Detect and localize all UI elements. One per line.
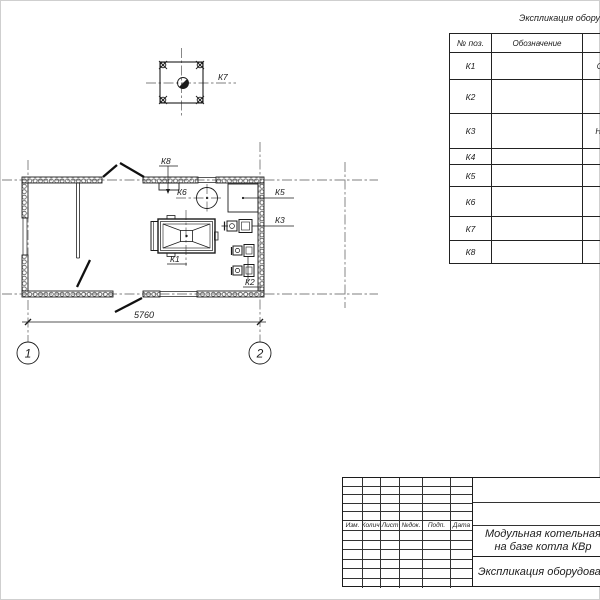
- centerlines: [2, 48, 378, 342]
- label-k2: К2: [245, 277, 255, 287]
- empty-cell: [473, 503, 600, 526]
- legend-name: [583, 241, 600, 263]
- document-title-line1: Модульная котельная: [485, 528, 600, 541]
- legend-pos: К6: [450, 187, 492, 216]
- legend-header-row: № поз. Обозначение: [450, 34, 600, 53]
- col-ndok: №док.: [400, 521, 423, 530]
- col-kolich: Колич.: [363, 521, 381, 530]
- legend-name: Насос: [583, 114, 600, 148]
- legend-pos: К1: [450, 53, 492, 79]
- legend-title: Экспликация обору: [519, 13, 600, 23]
- col-izm: Изм.: [343, 521, 363, 530]
- legend-designation: [492, 165, 583, 186]
- label-k7: К7: [218, 72, 228, 82]
- col-podp: Подп.: [423, 521, 451, 530]
- axis-markers: [17, 342, 271, 364]
- legend-designation: [492, 217, 583, 240]
- door-leaves: [77, 163, 144, 312]
- label-k8: К8: [161, 156, 171, 166]
- drawing-sheet: { "legend": { "title": "Экспликация обор…: [0, 0, 600, 600]
- col-data: Дата: [451, 521, 472, 530]
- legend-name: [583, 217, 600, 240]
- legend-row-k7: К7: [450, 217, 600, 241]
- legend-designation: [492, 187, 583, 216]
- equipment-legend-table: № поз. Обозначение К1 Стал К2 На К3 Насо…: [449, 33, 600, 264]
- partition-wall: [77, 183, 80, 258]
- label-k6: К6: [177, 187, 187, 197]
- title-block: Изм. Колич. Лист №док. Подп. Дата: [342, 477, 600, 587]
- legend-pos: К4: [450, 149, 492, 164]
- legend-row-k6: К6 Б: [450, 187, 600, 217]
- title-block-main: Модульная котельная на базе котла КВр Эк…: [473, 478, 600, 586]
- axis-number-1: 1: [25, 347, 32, 361]
- label-k1: К1: [170, 254, 180, 264]
- legend-name: [583, 165, 600, 186]
- title-block-header-row: Изм. Колич. Лист №док. Подп. Дата: [343, 521, 472, 531]
- legend-pos: К5: [450, 165, 492, 186]
- legend-pos: К2: [450, 80, 492, 113]
- legend-col-name: [583, 34, 600, 52]
- col-list: Лист: [381, 521, 400, 530]
- boiler-k1: [151, 216, 218, 257]
- document-title-line2: на базе котла КВр: [494, 541, 591, 554]
- sheet-name: Экспликация оборудовани: [473, 557, 600, 586]
- legend-row-k2: К2 На: [450, 80, 600, 114]
- document-title: Модульная котельная на базе котла КВр: [473, 526, 600, 557]
- legend-name: Гр: [583, 149, 600, 164]
- legend-pos: К7: [450, 217, 492, 240]
- legend-row-k3: К3 Насос: [450, 114, 600, 149]
- legend-row-k4: К4 Гр: [450, 149, 600, 165]
- legend-col-designation: Обозначение: [492, 34, 583, 52]
- legend-row-k8: К8: [450, 241, 600, 263]
- label-k3: К3: [275, 215, 285, 225]
- title-block-revision-grid: Изм. Колич. Лист №док. Подп. Дата: [343, 478, 473, 586]
- legend-designation: [492, 241, 583, 263]
- legend-name: Стал: [583, 53, 600, 79]
- designation-cell: [473, 478, 600, 503]
- legend-pos: К8: [450, 241, 492, 263]
- legend-designation: [492, 149, 583, 164]
- legend-pos: К3: [450, 114, 492, 148]
- dimension-value: 5760: [134, 310, 154, 320]
- axis-number-2: 2: [256, 347, 264, 361]
- legend-designation: [492, 114, 583, 148]
- legend-name: Б: [583, 187, 600, 216]
- legend-name: На: [583, 80, 600, 113]
- legend-col-pos: № поз.: [450, 34, 492, 52]
- pumps-k2: [232, 245, 255, 282]
- legend-row-k5: К5: [450, 165, 600, 187]
- legend-row-k1: К1 Стал: [450, 53, 600, 80]
- legend-designation: [492, 80, 583, 113]
- label-k5: К5: [275, 187, 285, 197]
- legend-designation: [492, 53, 583, 79]
